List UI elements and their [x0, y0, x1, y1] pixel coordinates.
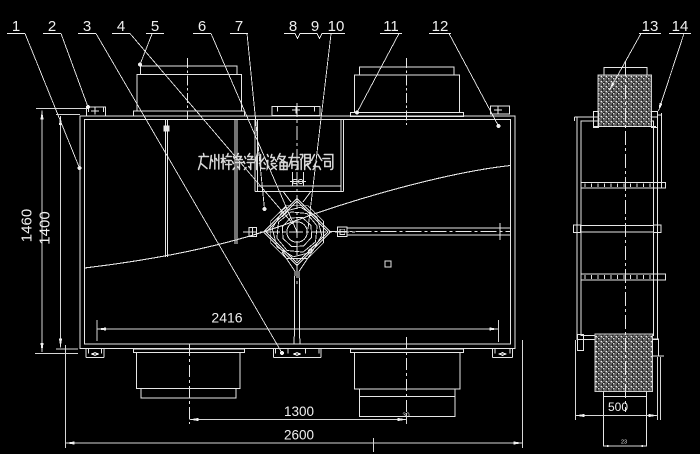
svg-text:8: 8 — [289, 18, 297, 35]
svg-text:6: 6 — [198, 18, 206, 35]
svg-text:2600: 2600 — [284, 428, 314, 443]
svg-text:10: 10 — [328, 18, 345, 35]
svg-text:7: 7 — [235, 18, 243, 35]
svg-text:13: 13 — [642, 18, 659, 35]
svg-text:12: 12 — [432, 18, 449, 35]
svg-text:2: 2 — [48, 18, 56, 35]
svg-text:9: 9 — [311, 18, 319, 35]
svg-text:1300: 1300 — [284, 404, 314, 419]
svg-text:2416: 2416 — [211, 310, 242, 326]
svg-text:1400: 1400 — [37, 211, 54, 244]
svg-text:4: 4 — [117, 18, 125, 35]
svg-text:23: 23 — [621, 440, 627, 446]
svg-text:3: 3 — [83, 18, 91, 35]
svg-text:11: 11 — [383, 18, 399, 35]
svg-text:14: 14 — [672, 18, 689, 35]
svg-text:5: 5 — [151, 18, 159, 35]
svg-text:1460: 1460 — [19, 209, 36, 242]
svg-text:500: 500 — [608, 400, 628, 414]
svg-text:1: 1 — [12, 18, 20, 35]
